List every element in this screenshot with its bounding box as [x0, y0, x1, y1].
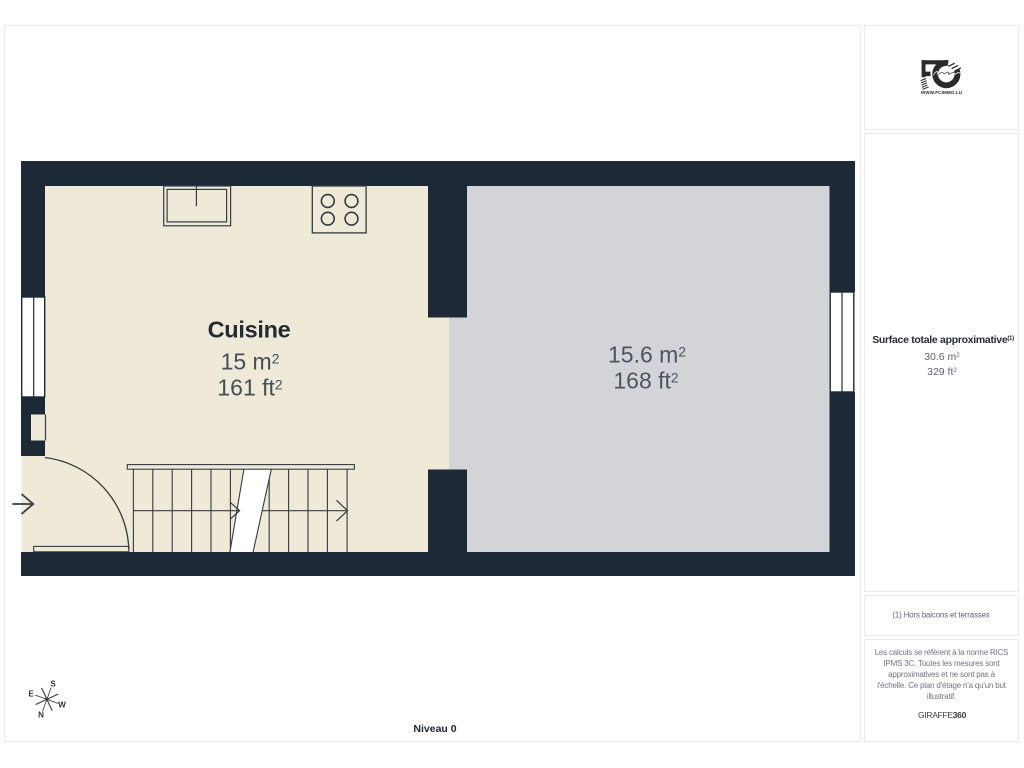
svg-text:WWW.FCIMMO.LU: WWW.FCIMMO.LU	[921, 90, 963, 95]
